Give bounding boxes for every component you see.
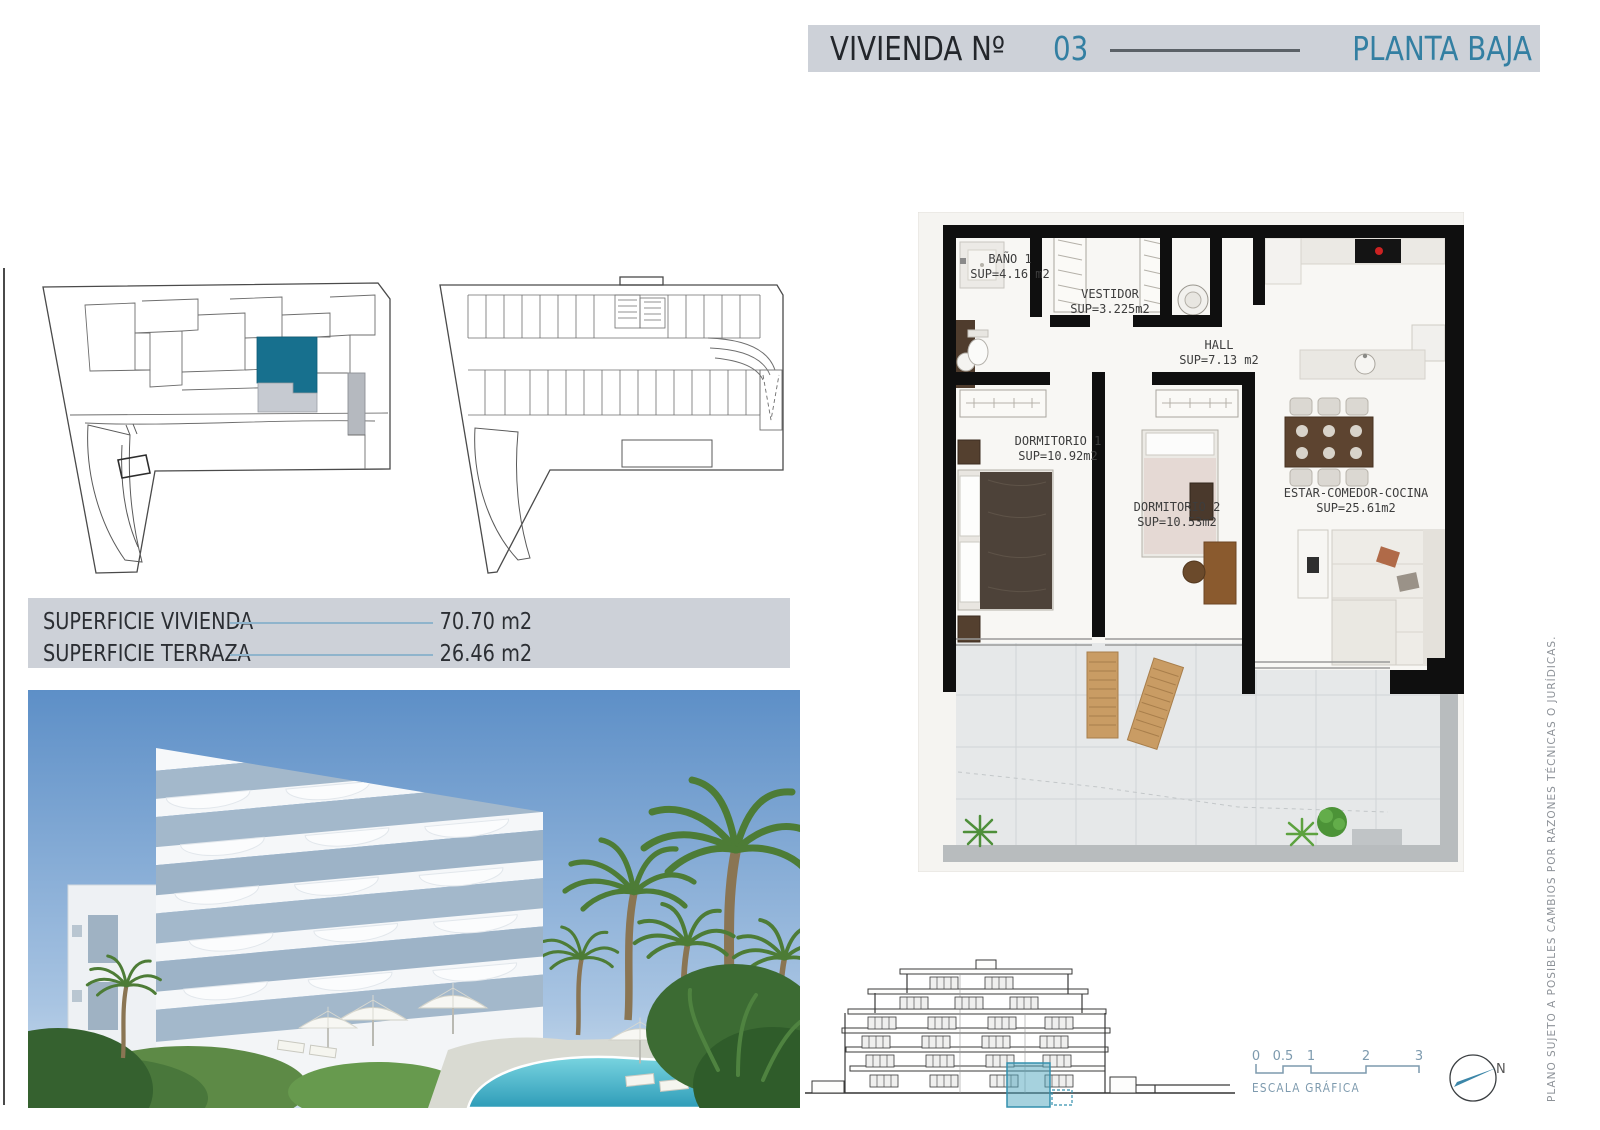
dining-set bbox=[1285, 398, 1373, 486]
brochure-page: VIVIENDA Nº 03 PLANTA BAJA bbox=[0, 0, 1600, 1130]
highlighted-unit-elevation bbox=[1007, 1063, 1050, 1107]
room-label-estar: ESTAR-COMEDOR-COCINA SUP=25.61m2 bbox=[1284, 486, 1429, 516]
header-divider-line bbox=[1110, 49, 1300, 52]
floor-plan-drawing bbox=[918, 212, 1464, 872]
surface-terraza-value: 26.46 m2 bbox=[400, 640, 532, 668]
room-name: DORMITORIO 2 bbox=[1134, 500, 1221, 515]
room-label-dormitorio2: DORMITORIO 2 SUP=10.53m2 bbox=[1134, 500, 1221, 530]
room-label-hall: HALL SUP=7.13 m2 bbox=[1179, 338, 1258, 368]
garage-plan bbox=[430, 270, 815, 582]
room-area: SUP=10.92m2 bbox=[1015, 449, 1102, 464]
compass-north-label: N bbox=[1496, 1062, 1506, 1077]
parking-rows bbox=[468, 295, 760, 415]
site-garden-area bbox=[88, 424, 150, 562]
garage-garden bbox=[475, 428, 712, 560]
scale-bar bbox=[1248, 1060, 1428, 1080]
unit-number-text: 03 bbox=[1053, 25, 1088, 72]
building-elevation bbox=[800, 955, 1240, 1110]
room-area: SUP=4.16 m2 bbox=[970, 267, 1049, 282]
building-photo bbox=[28, 690, 800, 1108]
room-label-dormitorio1: DORMITORIO 1 SUP=10.92m2 bbox=[1015, 434, 1102, 464]
room-area: SUP=7.13 m2 bbox=[1179, 353, 1258, 368]
room-name: ESTAR-COMEDOR-COCINA bbox=[1284, 486, 1429, 501]
room-name: DORMITORIO 1 bbox=[1015, 434, 1102, 449]
room-name: HALL bbox=[1179, 338, 1258, 353]
room-area: SUP=10.53m2 bbox=[1134, 515, 1221, 530]
site-unit-outlines bbox=[70, 295, 388, 469]
room-area: SUP=3.225m2 bbox=[1070, 302, 1149, 317]
title-label: VIVIENDA Nº bbox=[830, 25, 1005, 72]
page-edge-line bbox=[3, 268, 5, 1105]
garage-ramp bbox=[708, 338, 782, 430]
room-name: BAÑO 1 bbox=[970, 252, 1049, 267]
desk bbox=[1204, 542, 1236, 604]
scale-bar-label: ESCALA GRÁFICA bbox=[1252, 1080, 1380, 1095]
floor-title: PLANTA BAJA bbox=[1318, 25, 1532, 72]
site-key-plan bbox=[30, 275, 425, 575]
surface-vivienda-value: 70.70 m2 bbox=[400, 608, 532, 636]
page-title: VIVIENDA Nº bbox=[830, 25, 1038, 72]
room-label-bano: BAÑO 1 SUP=4.16 m2 bbox=[970, 252, 1049, 282]
legal-disclaimer: PLANO SUJETO A POSIBLES CAMBIOS POR RAZO… bbox=[1546, 690, 1564, 1102]
floor-title-text: PLANTA BAJA bbox=[1352, 25, 1532, 72]
terrace bbox=[943, 643, 1458, 862]
room-name: VESTIDOR bbox=[1070, 287, 1149, 302]
floor-plan: BAÑO 1 SUP=4.16 m2 VESTIDOR SUP=3.225m2 … bbox=[918, 212, 1464, 872]
room-label-vestidor: VESTIDOR SUP=3.225m2 bbox=[1070, 287, 1149, 317]
room-area: SUP=25.61m2 bbox=[1284, 501, 1429, 516]
unit-number: 03 bbox=[1053, 25, 1095, 72]
compass-icon bbox=[1440, 1046, 1512, 1112]
